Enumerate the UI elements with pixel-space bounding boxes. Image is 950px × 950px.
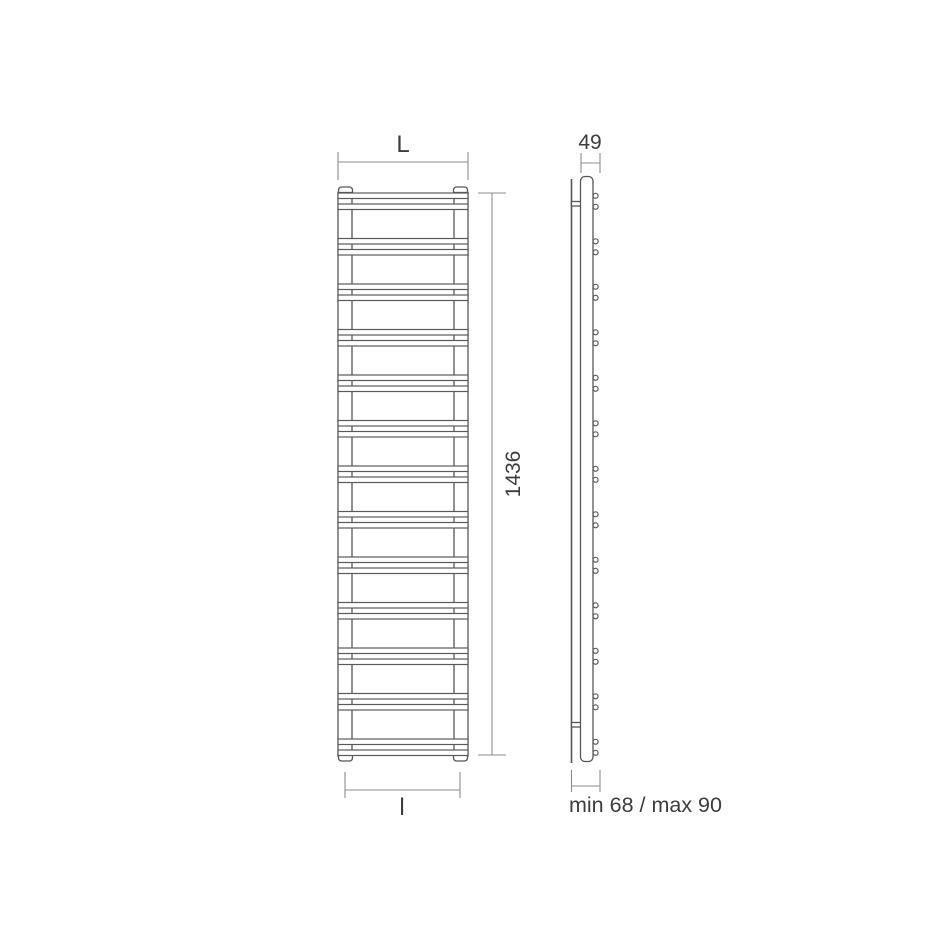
- rung-bar: [338, 739, 468, 745]
- tube-end-circle: [593, 250, 598, 255]
- tube-end-circle: [593, 750, 598, 755]
- dimension-depth-49: 49: [578, 131, 601, 173]
- rung-bar: [338, 659, 468, 665]
- left-rail: [338, 193, 352, 757]
- rung-bar: [338, 694, 468, 700]
- rung-bar: [338, 523, 468, 529]
- tube-end-circle: [593, 705, 598, 710]
- dim-label-bottom-width: l: [399, 794, 404, 821]
- dim-label-depth: 49: [578, 131, 601, 154]
- rung-bars: [338, 193, 468, 756]
- dimension-height-1436: 1436: [478, 193, 525, 755]
- rung-bar: [338, 375, 468, 381]
- tube-end-circle: [593, 375, 598, 380]
- dim-label-height: 1436: [502, 451, 525, 498]
- rung-bar: [338, 477, 468, 483]
- rung-bar: [338, 250, 468, 256]
- tube-end-circle: [593, 432, 598, 437]
- dimension-wall-distance: min 68 / max 90: [569, 770, 722, 817]
- rung-bar: [338, 750, 468, 756]
- rung-bar: [338, 284, 468, 290]
- tube-end-circle: [593, 295, 598, 300]
- tube-end-circle: [593, 694, 598, 699]
- rung-bar: [338, 603, 468, 609]
- tube-end-circle: [593, 648, 598, 653]
- dimension-bottom-width-l: l: [345, 772, 460, 821]
- wall-bracket-top: [572, 202, 582, 207]
- rung-bar: [338, 295, 468, 301]
- rung-bar: [338, 705, 468, 711]
- tube-end-circle: [593, 614, 598, 619]
- radiator-technical-drawing: L 1436 l 49 min 68 / max 90: [0, 0, 950, 950]
- rung-bar: [338, 239, 468, 245]
- tube-end-circle: [593, 523, 598, 528]
- dimension-width-L: L: [338, 131, 468, 180]
- tube-end-circle: [593, 239, 598, 244]
- rung-bar: [338, 557, 468, 563]
- dim-label-width: L: [396, 131, 409, 158]
- dim-label-wall-distance: min 68 / max 90: [569, 793, 722, 817]
- tube-end-circle: [593, 659, 598, 664]
- right-rail: [454, 193, 468, 757]
- wall-bracket-bottom: [572, 723, 582, 728]
- tube-end-circle: [593, 466, 598, 471]
- side-body: [581, 177, 594, 762]
- tube-end-circle: [593, 341, 598, 346]
- tube-end-circle: [593, 204, 598, 209]
- rung-bar: [338, 432, 468, 438]
- tube-end-circle: [593, 421, 598, 426]
- tube-end-circle: [593, 603, 598, 608]
- rung-bar: [338, 421, 468, 427]
- side-view: [572, 177, 599, 764]
- tube-end-circle: [593, 284, 598, 289]
- rung-bar: [338, 193, 468, 199]
- tube-end-circle: [593, 568, 598, 573]
- tube-end-circle: [593, 557, 598, 562]
- rung-bar: [338, 512, 468, 518]
- rung-bar: [338, 568, 468, 574]
- tube-end-circle: [593, 512, 598, 517]
- tube-end-circles: [593, 193, 598, 755]
- rung-bar: [338, 330, 468, 336]
- rung-bar: [338, 204, 468, 210]
- tube-end-circle: [593, 330, 598, 335]
- rung-bar: [338, 341, 468, 347]
- drawing-canvas: L 1436 l 49 min 68 / max 90: [0, 0, 950, 950]
- tube-end-circle: [593, 193, 598, 198]
- front-view: [338, 187, 468, 761]
- rung-bar: [338, 614, 468, 620]
- tube-end-circle: [593, 739, 598, 744]
- tube-end-circle: [593, 386, 598, 391]
- rung-bar: [338, 386, 468, 392]
- tube-end-circle: [593, 477, 598, 482]
- rung-bar: [338, 648, 468, 654]
- rung-bar: [338, 466, 468, 472]
